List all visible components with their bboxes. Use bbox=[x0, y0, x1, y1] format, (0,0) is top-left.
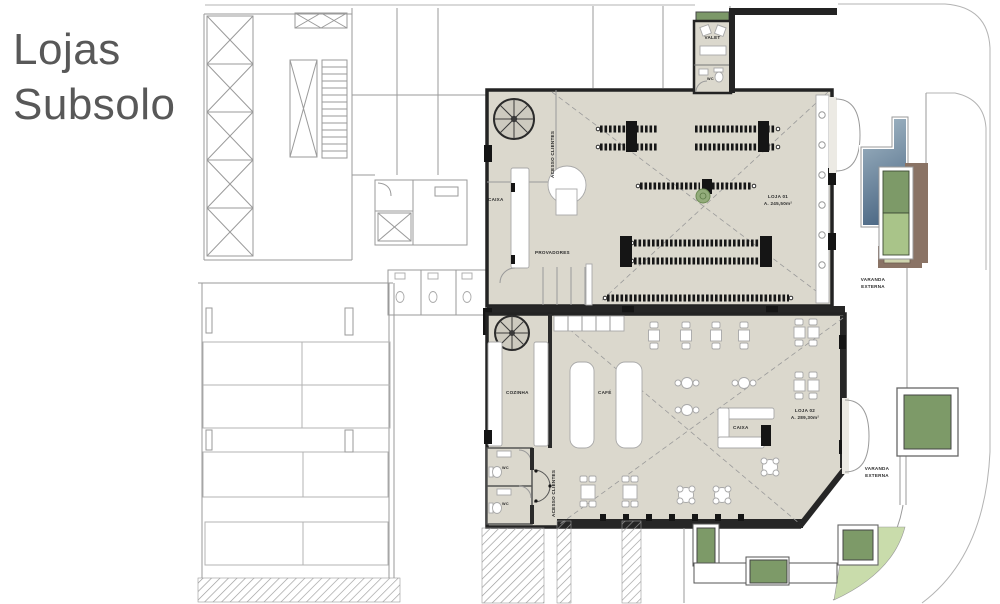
varanda-doors-upper bbox=[829, 97, 860, 173]
label-acesso-loja2: ACESSO CLIENTES bbox=[551, 470, 558, 517]
ramp-hatch-2 bbox=[482, 528, 544, 603]
valet-block bbox=[694, 8, 837, 93]
label-wc2: WC bbox=[502, 502, 509, 508]
title-line2: Subsolo bbox=[13, 77, 176, 132]
label-provadores: PROVADORES bbox=[535, 250, 570, 257]
label-valet: VALET bbox=[698, 35, 727, 42]
planter-row-bottom bbox=[693, 524, 837, 585]
wc-rooms-loja2 bbox=[487, 448, 532, 524]
planter-corner bbox=[838, 525, 878, 565]
label-cozinha: COZINHA bbox=[506, 390, 529, 397]
elevator-shafts bbox=[207, 13, 347, 256]
label-caixa-loja2: CAIXA bbox=[733, 425, 749, 432]
staircase bbox=[322, 60, 347, 158]
label-wc1: WC bbox=[502, 466, 509, 472]
planter-two-tone bbox=[879, 167, 913, 259]
page-title: Lojas Subsolo bbox=[13, 22, 176, 132]
tree-symbol bbox=[696, 189, 710, 203]
ramp-hatch bbox=[198, 578, 400, 602]
buffet-counter bbox=[554, 316, 624, 331]
right-display-band bbox=[816, 95, 829, 303]
label-caixa-loja1: CAIXA bbox=[488, 197, 504, 204]
title-line1: Lojas bbox=[13, 22, 176, 77]
label-loja2: LOJA 02 A. 289,30m² bbox=[780, 408, 830, 422]
label-loja1: LOJA 01 A. 245,50m² bbox=[753, 194, 803, 208]
spiral-stair-loja1 bbox=[494, 99, 534, 139]
label-cafe: CAFÉ bbox=[598, 390, 612, 397]
label-varanda-lower: VARANDA EXTERNA bbox=[856, 466, 898, 480]
planter-right bbox=[897, 388, 958, 456]
floor-plan-canvas: Lojas Subsolo VALET WC CAIXA PROVADORES … bbox=[0, 0, 1000, 604]
service-rooms bbox=[375, 180, 467, 245]
varanda-doors-lower bbox=[842, 398, 869, 474]
parking-area bbox=[198, 283, 400, 602]
label-acesso-loja1: ACESSO CLIENTES bbox=[550, 131, 557, 178]
wc-cluster bbox=[388, 270, 488, 315]
label-valet-wc: WC bbox=[707, 77, 714, 83]
label-varanda-upper: VARANDA EXTERNA bbox=[852, 277, 894, 291]
cafe-counter bbox=[570, 362, 594, 448]
